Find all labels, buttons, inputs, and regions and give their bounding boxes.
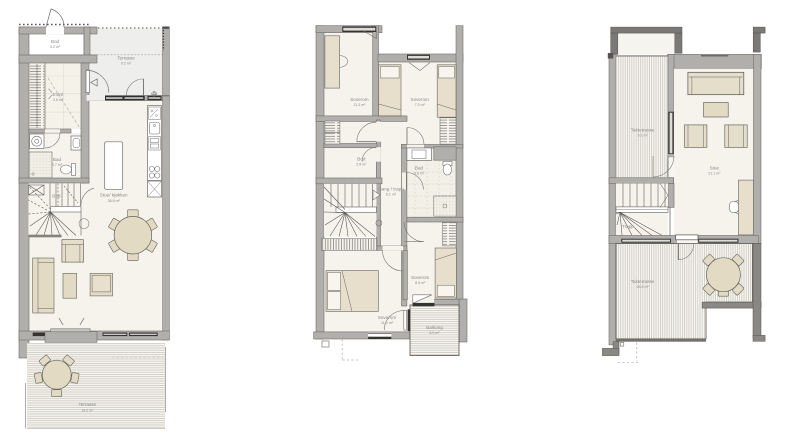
svg-text:Soverom: Soverom [411, 275, 430, 280]
svg-text:Stue/ kjøkken: Stue/ kjøkken [100, 193, 128, 198]
svg-text:Gang / trapp: Gang / trapp [378, 187, 404, 192]
svg-text:3.7 m²: 3.7 m² [52, 163, 63, 167]
svg-text:Soverom: Soverom [378, 315, 397, 320]
svg-text:Terrasse: Terrasse [117, 56, 135, 61]
svg-text:9.1 m²: 9.1 m² [638, 134, 649, 138]
svg-text:Soverom: Soverom [350, 97, 369, 102]
svg-text:Bod: Bod [52, 194, 61, 199]
svg-text:16.6 m²: 16.6 m² [637, 285, 650, 289]
svg-text:Bod: Bod [357, 157, 366, 162]
svg-text:Takterrasse: Takterrasse [631, 279, 655, 284]
svg-text:21.1 m²: 21.1 m² [708, 172, 721, 176]
svg-text:3.2 m²: 3.2 m² [50, 45, 61, 49]
svg-text:Bad: Bad [415, 166, 424, 171]
svg-text:11.2 m²: 11.2 m² [381, 321, 394, 325]
svg-text:Takterrasse: Takterrasse [631, 128, 655, 133]
svg-text:Stue: Stue [710, 166, 720, 171]
svg-text:19.2 m²: 19.2 m² [81, 409, 94, 413]
svg-text:6.1 m²: 6.1 m² [386, 193, 397, 197]
svg-text:Trapp: Trapp [622, 224, 634, 229]
svg-text:Bad: Bad [53, 157, 62, 162]
svg-text:Soverom: Soverom [411, 97, 430, 102]
svg-text:11.3 m²: 11.3 m² [353, 103, 366, 107]
svg-text:Entré: Entré [53, 92, 64, 97]
svg-text:2.8 m²: 2.8 m² [356, 163, 367, 167]
svg-text:36.8 m²: 36.8 m² [108, 199, 121, 203]
svg-text:Terrasse: Terrasse [78, 402, 96, 407]
svg-text:Balkong: Balkong [426, 325, 443, 330]
svg-text:8.5 m²: 8.5 m² [415, 281, 426, 285]
svg-text:3.8 m²: 3.8 m² [414, 172, 425, 176]
svg-text:9.2 m²: 9.2 m² [121, 62, 132, 66]
svg-text:5.0 m²: 5.0 m² [429, 331, 440, 335]
svg-text:3.6 m²: 3.6 m² [53, 98, 64, 102]
svg-text:Bod: Bod [51, 39, 60, 44]
svg-text:7.3 m²: 7.3 m² [415, 103, 426, 107]
